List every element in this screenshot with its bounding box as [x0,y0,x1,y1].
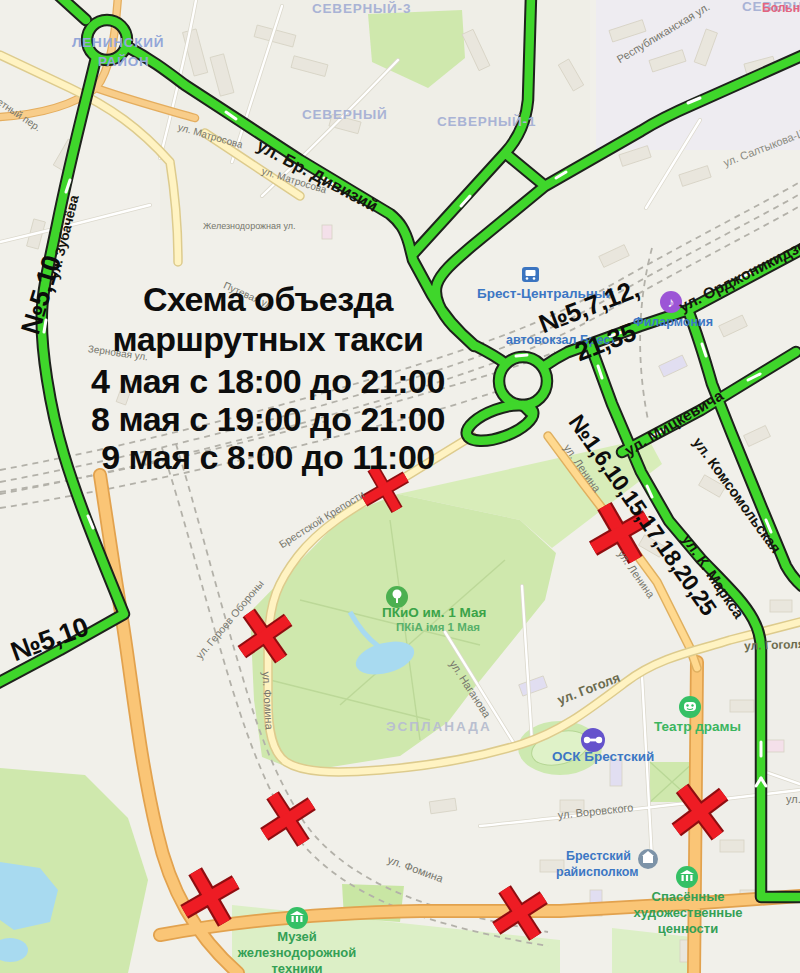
street-label-fomina-a: ул. Фомина [261,671,275,730]
poi-label-teatr-dramy: Театр драмы [654,720,741,734]
train-station-icon [522,267,539,282]
poi-label-muzei-2: железнодорожной [238,946,357,959]
poi-label-muzei-1: Музей [277,930,316,943]
scheme-title-line-1: Схема объезда [143,280,393,319]
poi-label-spasennye-3: ценности [658,922,718,935]
poi-label-filarmonia: Филармония [633,316,713,329]
scheme-schedule-line-3: 9 мая с 8:00 до 11:00 [101,438,434,477]
street-label-zheleznodorozhnaya: Железнодорожная ул. [203,222,295,231]
poi-label-spasennye-2: художественные [633,906,742,919]
poi-label-raiispolkom-1: Брестский [566,850,631,863]
theater-icon [679,696,701,718]
closed-road-x-mark [184,871,235,922]
scheme-schedule-line-1: 4 мая с 18:00 до 21:00 [91,362,445,401]
street-label-gogolya-b: ул. Гоголя [744,638,800,652]
scheme-schedule-line-2: 8 мая с 19:00 до 21:00 [91,400,445,439]
poi-label-pkio-ru: ПКиО им. 1 Мая [382,606,486,620]
scheme-title-line-2: маршрутных такси [113,320,424,359]
poi-label-muzei-3: техники [272,962,323,973]
saved-values-museum-icon [676,866,698,888]
svg-text:♪: ♪ [668,294,675,310]
poi-label-osk: ОСК Брестский [552,750,654,764]
poi-label-raiispolkom-2: райисполком [556,866,639,879]
map-canvas: ♪ [0,0,800,973]
poi-label-pkio-by: ПКіА імя 1 Мая [396,622,480,634]
detour-scheme-map: ♪ [0,0,800,973]
district-label-esplanada: ЭСПЛАНАДА [386,720,492,734]
street-label-ul-d: ул. Д [786,794,800,805]
city-administration-icon [638,849,658,869]
rail-museum-icon [286,907,308,929]
district-label-severny1: СЕВЕРНЫЙ-1 [437,115,536,129]
poi-label-spasennye-1: Спасённые [652,890,725,903]
closed-road-x-mark [264,795,311,842]
district-label-leninsky2: РАЙОН [98,55,150,69]
district-label-severny3: СЕВЕРНЫЙ-3 [312,2,411,16]
district-label-severny: СЕВЕРНЫЙ [302,108,388,122]
poi-label-bolnitsa: Больн [762,2,800,14]
district-label-leninsky: ЛЕНИНСКИЙ [72,36,164,50]
